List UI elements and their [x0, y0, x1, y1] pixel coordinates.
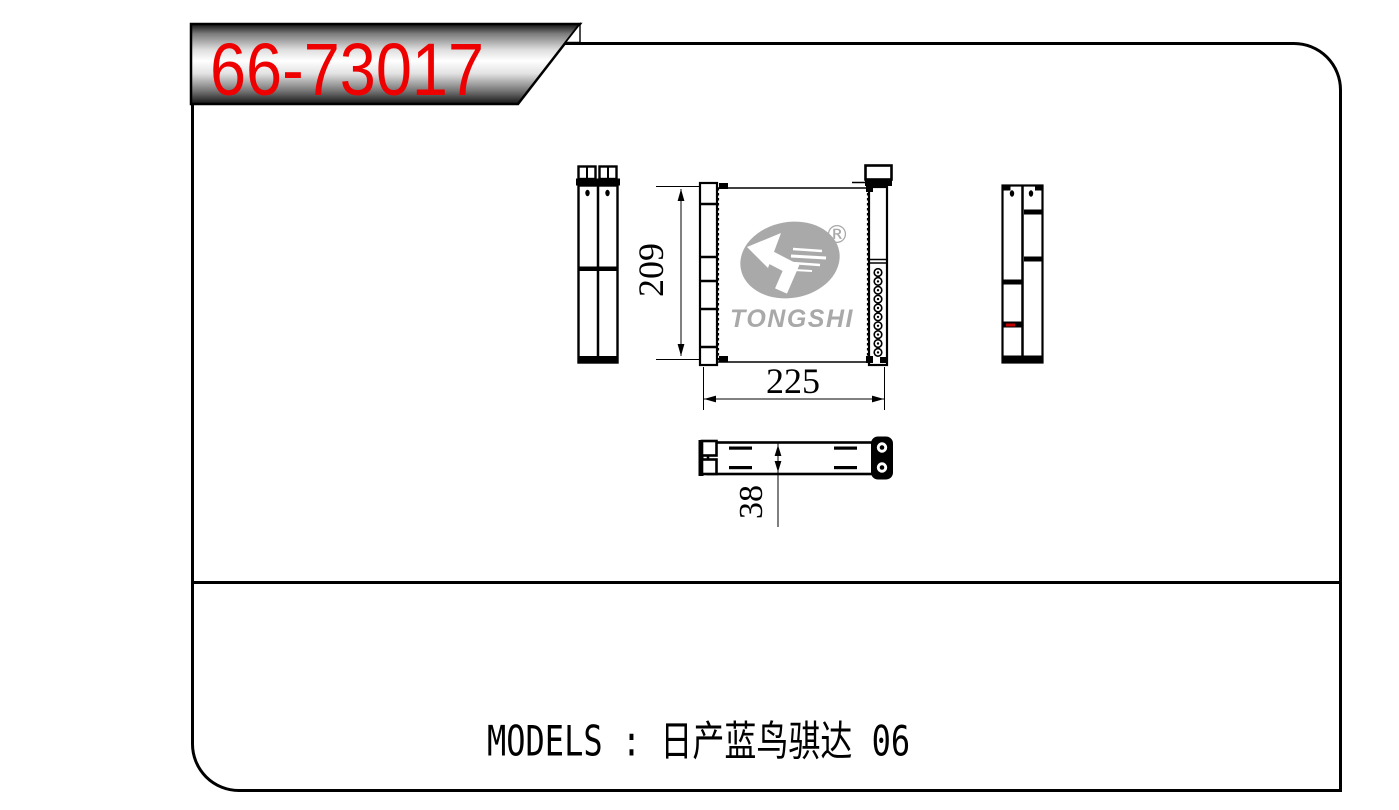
pipe-fitting: [866, 166, 892, 180]
part-number-text: 66-73017: [210, 28, 484, 111]
height-dim-text: 209: [631, 243, 671, 297]
drawing-sheet: MODELS : 日产蓝鸟骐达 06 CORE SIZE : 225*209*3…: [0, 0, 1399, 810]
depth-dim-text: 38: [733, 485, 770, 519]
part-number-banner: 66-73017: [191, 24, 580, 111]
width-dim-text: 225: [766, 361, 820, 401]
red-marker: [1006, 324, 1015, 327]
brand-name: TONGSHI: [730, 305, 854, 333]
technical-drawing: 66-73017: [0, 0, 1399, 810]
left-tank-side-view: [576, 167, 620, 363]
tongshi-logo: ® TONGSHI: [730, 214, 854, 333]
registered-trademark-icon: ®: [825, 220, 850, 249]
width-dimension: 225: [704, 361, 885, 410]
right-tank-side-view: [1003, 186, 1044, 363]
bottom-view: [699, 437, 894, 480]
height-dimension: 209: [631, 187, 699, 360]
